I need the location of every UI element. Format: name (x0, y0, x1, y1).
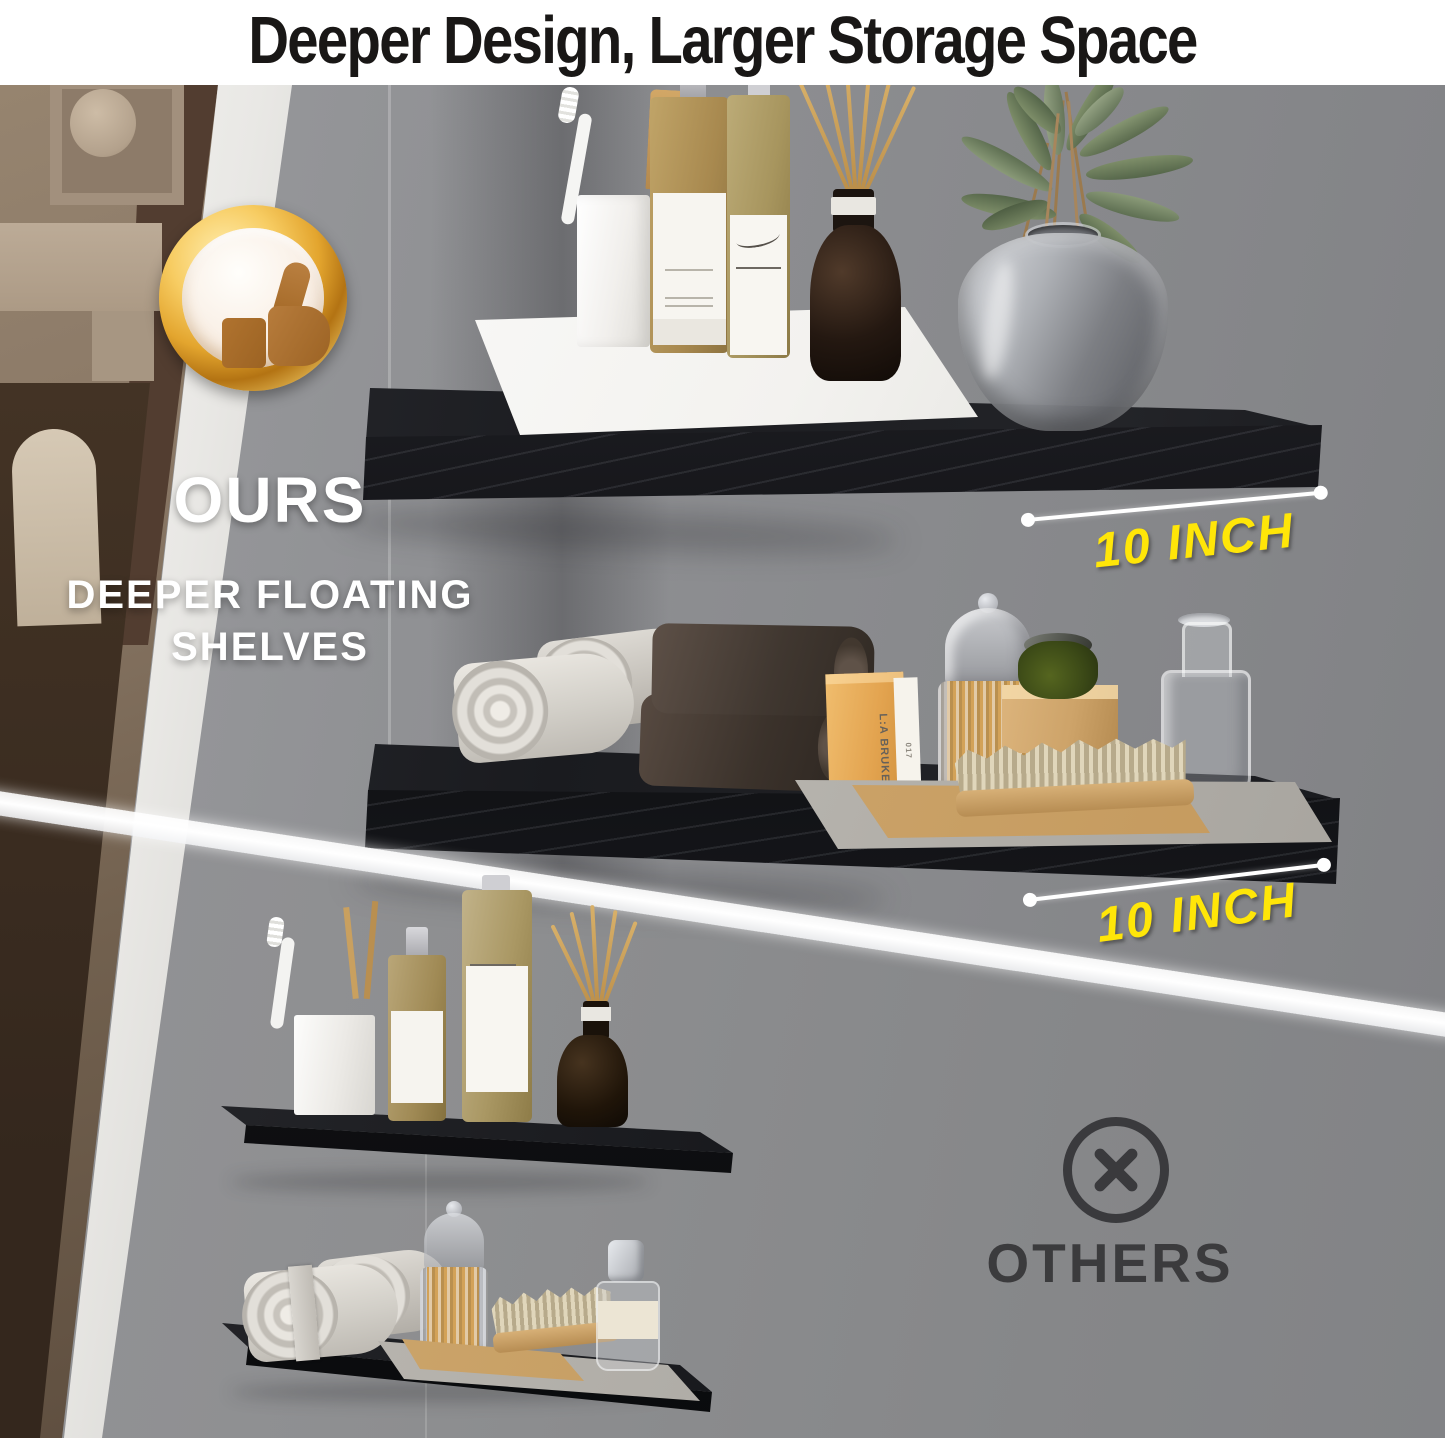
label-line (665, 305, 713, 307)
title-band: Deeper Design, Larger Storage Space (0, 0, 1445, 85)
pump-bottle (388, 955, 446, 1121)
depth-label: 10 INCH (1091, 503, 1298, 580)
bottle-label (466, 966, 528, 1092)
badge-inner-circle (182, 228, 324, 368)
tall-bottle (462, 890, 532, 1122)
shelf-shadow (230, 1173, 650, 1191)
towel-strap (288, 1265, 320, 1362)
bottle-label (730, 215, 787, 355)
clear-bottle-neck (1182, 622, 1232, 677)
others-heading: OTHERS (940, 1231, 1280, 1295)
ours-label-block: OURS DEEPER FLOATING SHELVES (30, 467, 510, 673)
thumbs-up-fist (268, 306, 330, 366)
product-infographic: Deeper Design, Larger Storage Space (0, 0, 1445, 1438)
pump-bottle (650, 97, 729, 353)
thumbs-up-cuff (222, 318, 266, 368)
label-line (665, 269, 713, 271)
label-line (665, 297, 713, 299)
artwork-shape (70, 89, 136, 157)
toothbrush-cup (294, 1015, 375, 1115)
x-circle-icon (1063, 1117, 1169, 1223)
apothecary-jar-dome (424, 1213, 484, 1271)
glass-bottle-stopper (608, 1240, 644, 1282)
page-title: Deeper Design, Larger Storage Space (116, 0, 1330, 82)
artwork-shape (0, 223, 162, 311)
ours-heading: OURS (30, 467, 510, 533)
label-script (735, 226, 781, 250)
tall-bottle (727, 95, 790, 358)
reed-diffuser-bottle (810, 225, 901, 381)
soap-box-brand: L:A BRUKET (877, 713, 892, 790)
artwork-shape (92, 311, 154, 381)
bottle-label (598, 1301, 658, 1339)
ours-subheading-line2: SHELVES (30, 621, 510, 673)
plant-leaf (1085, 150, 1195, 185)
depth-label: 10 INCH (1093, 872, 1300, 954)
product-photo: 10 INCH 017 L:A BRUKET 10 INCH (0, 85, 1445, 1438)
bottle-label (391, 1011, 443, 1103)
reed-diffuser-bottle (557, 1035, 628, 1127)
diffuser-label (581, 1007, 611, 1021)
green-glass-jar (1018, 641, 1098, 699)
bottle-label (653, 193, 726, 345)
ours-subheading-line1: DEEPER FLOATING (30, 569, 510, 621)
diffuser-reed (798, 85, 854, 200)
label-line (470, 964, 516, 966)
toothbrush-cup (577, 195, 650, 347)
label-line (736, 267, 781, 269)
glass-bottle (596, 1281, 660, 1371)
diffuser-label (831, 197, 876, 215)
diffuser-reed (860, 86, 916, 200)
thumbs-up-badge (159, 205, 347, 391)
